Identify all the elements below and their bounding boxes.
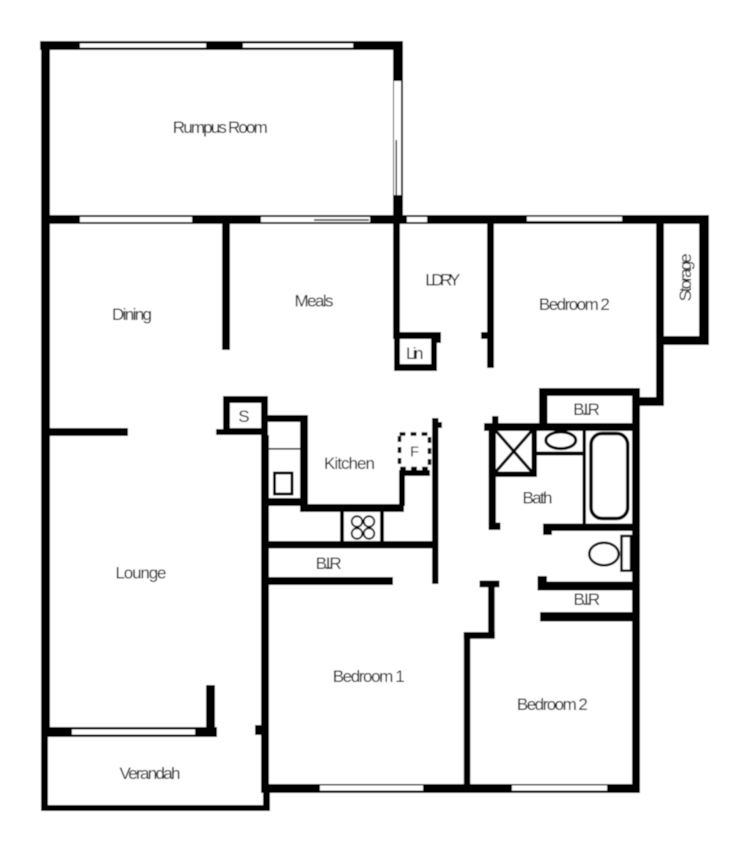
svg-text:Verandah: Verandah bbox=[120, 764, 181, 783]
svg-text:Bedroom 1: Bedroom 1 bbox=[333, 667, 405, 686]
svg-text:Bath: Bath bbox=[523, 489, 553, 508]
svg-text:B.I.R: B.I.R bbox=[573, 400, 600, 419]
svg-text:Storage: Storage bbox=[676, 253, 695, 301]
svg-text:Dining: Dining bbox=[112, 305, 152, 324]
svg-text:LDR’Y: LDR’Y bbox=[425, 271, 460, 290]
svg-text:Lounge: Lounge bbox=[116, 564, 167, 583]
svg-text:Lin: Lin bbox=[406, 344, 424, 363]
svg-text:S: S bbox=[238, 407, 249, 426]
svg-text:Kitchen: Kitchen bbox=[324, 454, 375, 473]
svg-text:B.I.R: B.I.R bbox=[316, 554, 342, 573]
svg-text:F: F bbox=[410, 445, 419, 461]
svg-text:Meals: Meals bbox=[295, 292, 334, 311]
svg-text:B.I.R: B.I.R bbox=[573, 590, 600, 609]
svg-text:Rumpus Room: Rumpus Room bbox=[173, 118, 268, 137]
svg-text:Bedroom 2: Bedroom 2 bbox=[517, 695, 588, 714]
svg-text:Bedroom 2: Bedroom 2 bbox=[539, 295, 610, 314]
